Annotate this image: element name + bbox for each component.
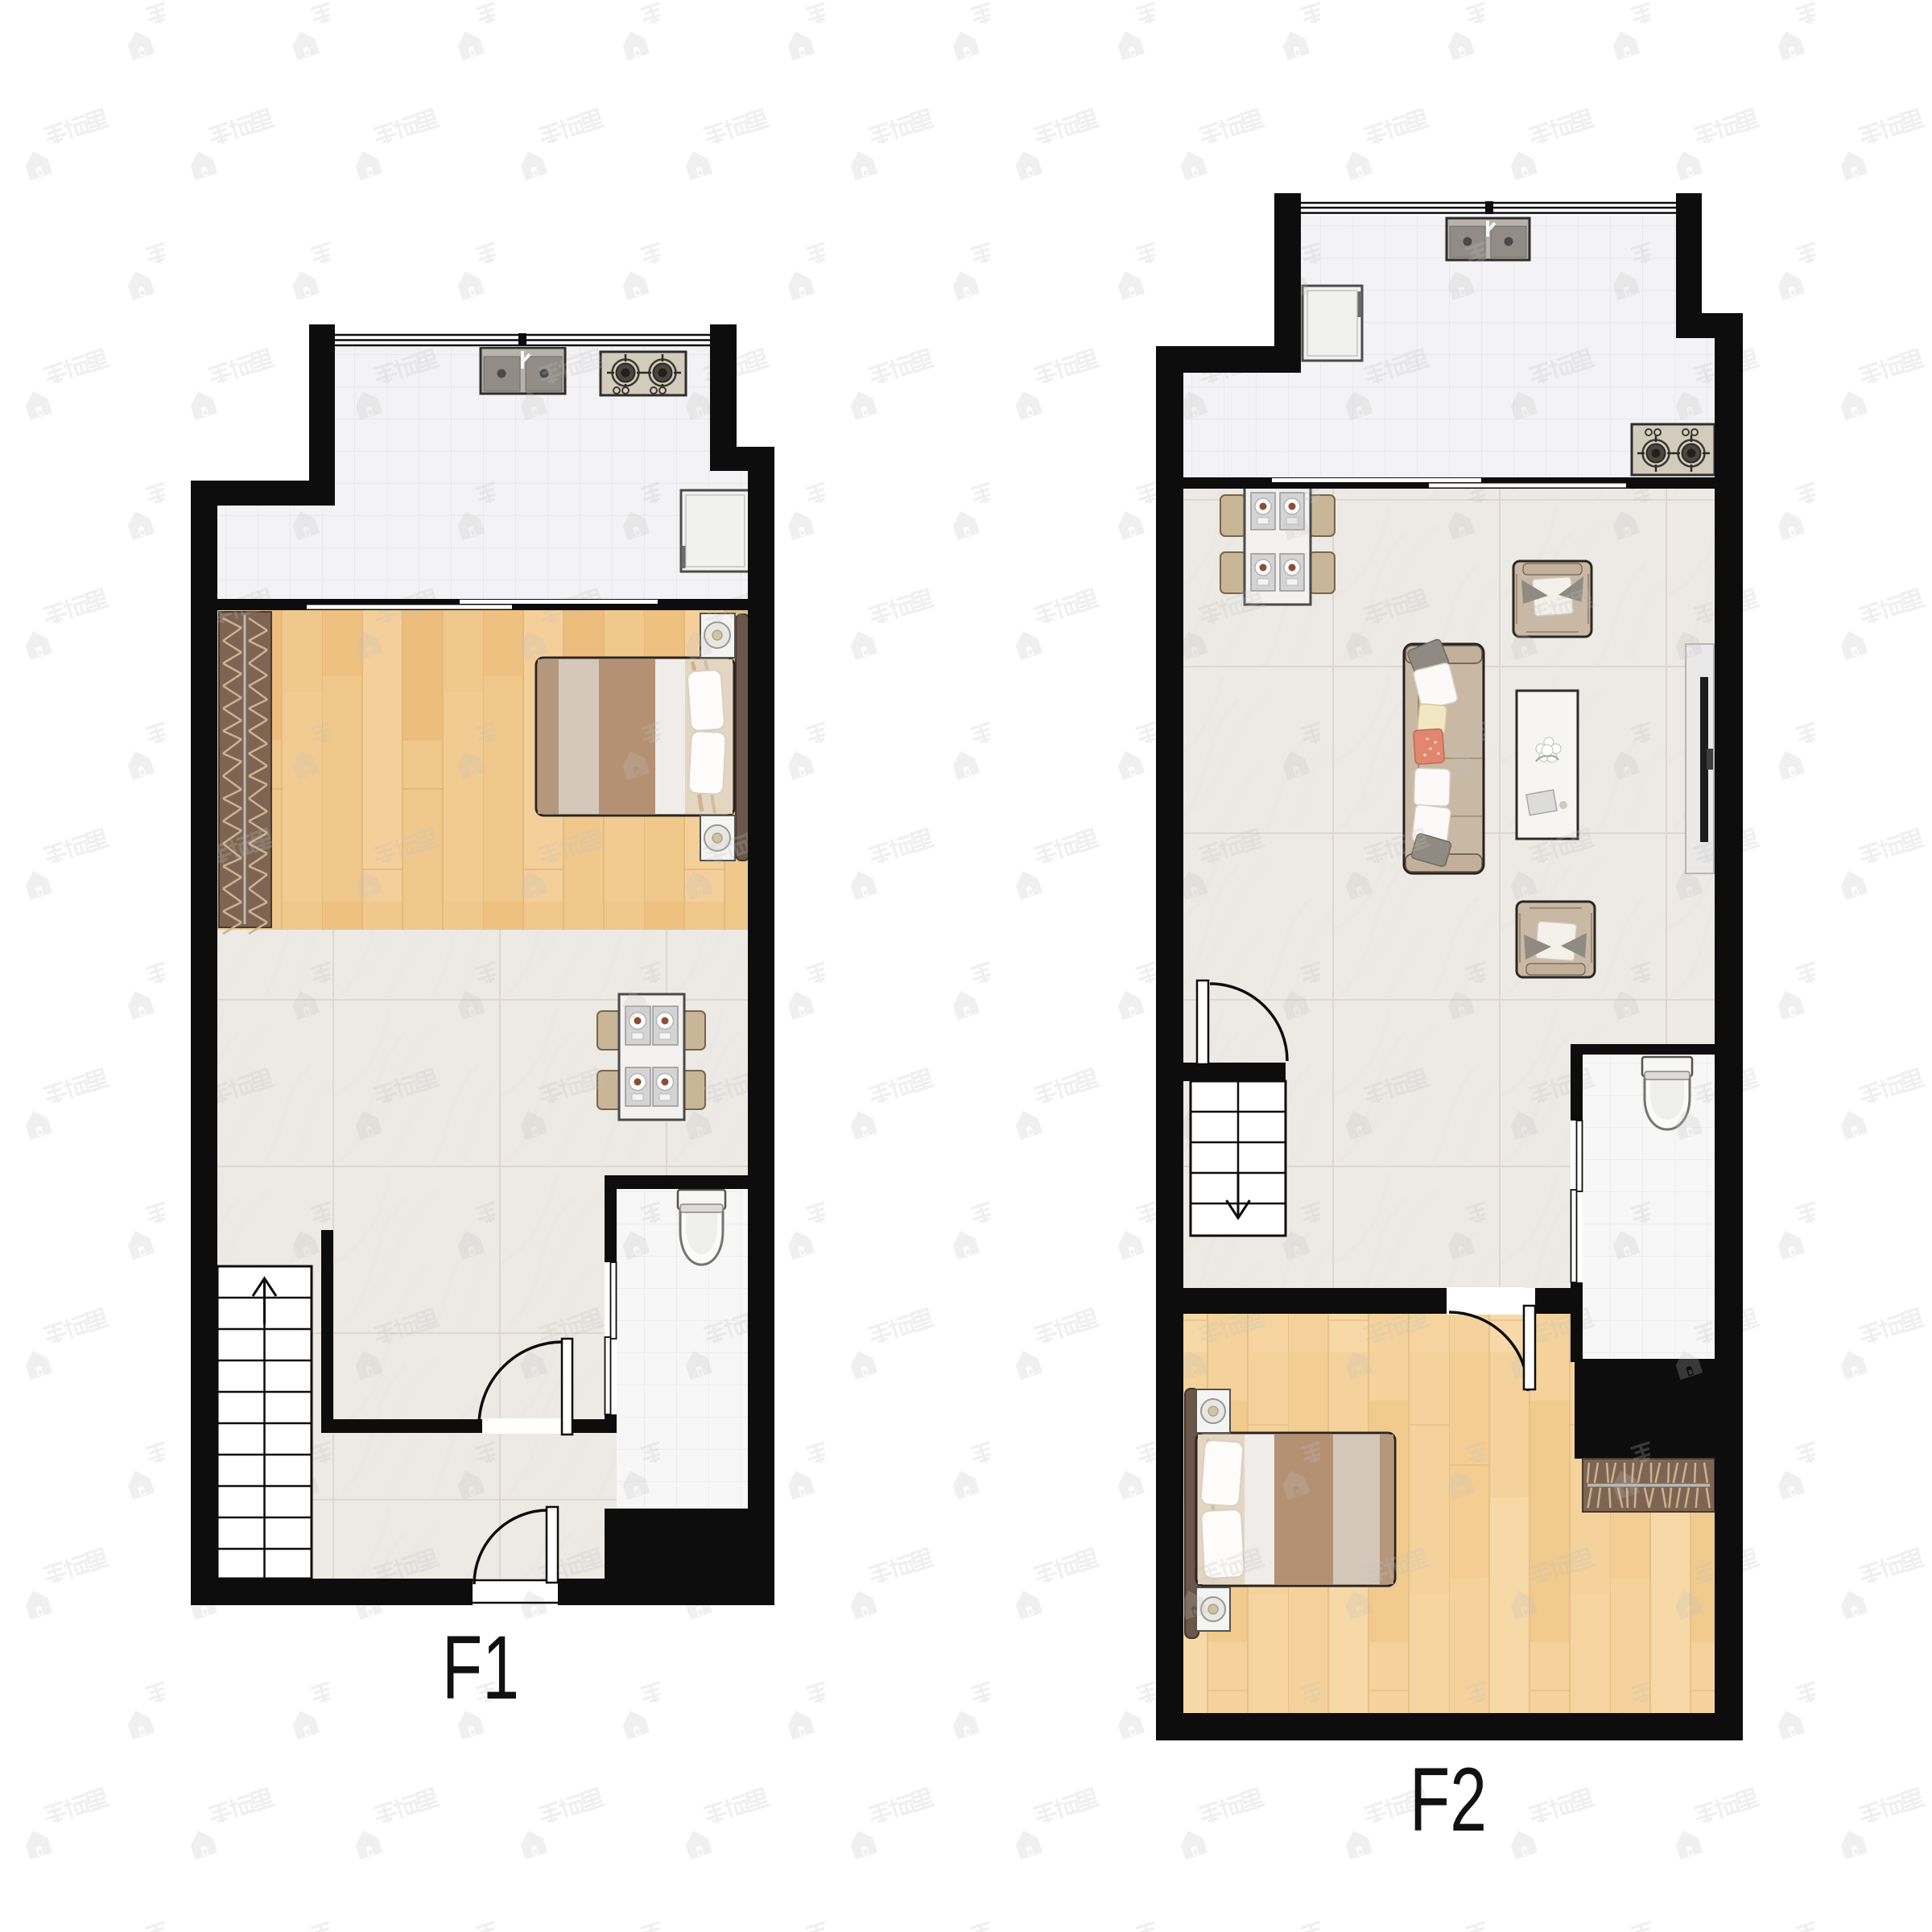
svg-text:F2: F2: [1410, 1749, 1487, 1850]
svg-text:F1: F1: [442, 1617, 519, 1718]
